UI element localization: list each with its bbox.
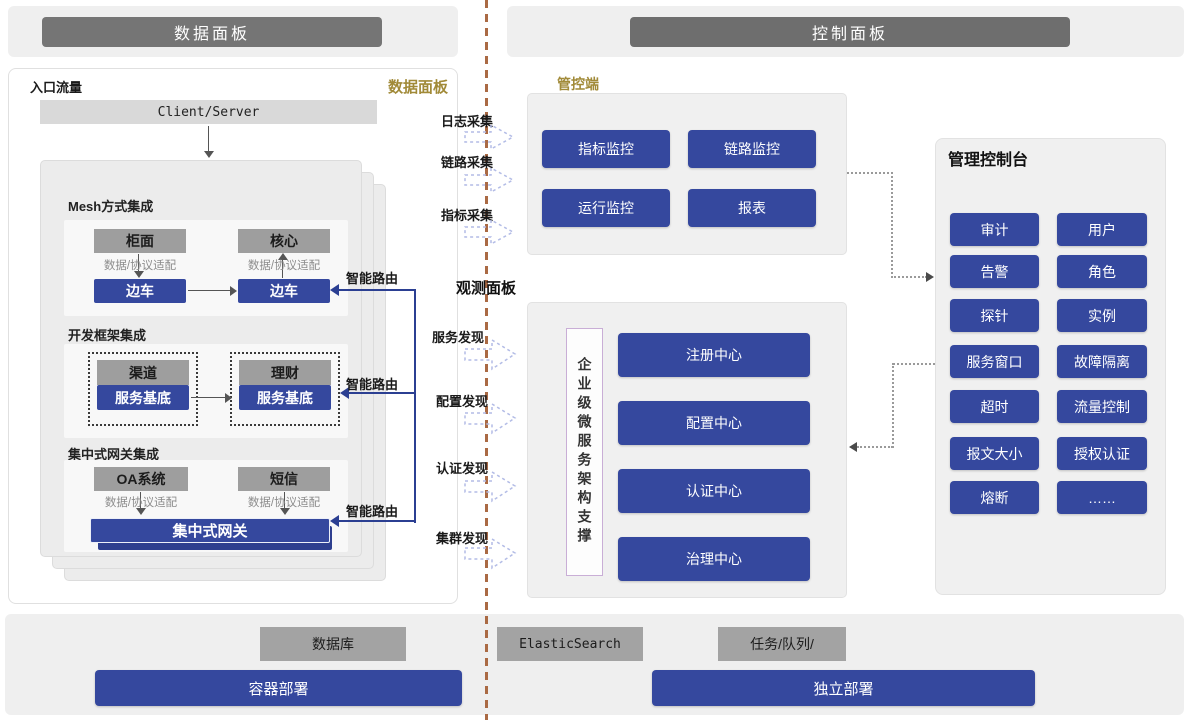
framework-base-right-label: 服务基底	[257, 388, 313, 408]
smart-route-label-2: 智能路由	[346, 374, 398, 393]
framework-base-left-label: 服务基底	[115, 388, 171, 408]
smart-route-label-3: 智能路由	[346, 501, 398, 520]
center-config-label: 配置中心	[686, 413, 742, 433]
control-panel-header-label: 控制面板	[812, 20, 888, 44]
mesh-adapter-left-label: 数据/协议适配	[94, 257, 186, 273]
sidecar-link-arrow-icon	[230, 286, 237, 296]
console-button-role: 角色	[1057, 255, 1147, 288]
database-node: 数据库	[260, 627, 406, 661]
smart-route-line-1	[338, 289, 416, 291]
connector-monitor-to-console-h1	[847, 172, 893, 174]
sidecar-right-label: 边车	[270, 281, 298, 301]
framework-section-title: 开发框架集成	[68, 325, 146, 344]
console-button-audit-label: 审计	[981, 220, 1009, 240]
console-button-audit: 审计	[950, 213, 1039, 246]
console-button-authz-label: 授权认证	[1074, 444, 1130, 464]
gateway-adapter-left-label: 数据/协议适配	[94, 494, 188, 510]
monitor-button-report-label: 报表	[738, 198, 766, 218]
connector-monitor-to-console-v	[891, 172, 893, 278]
monitor-button-runtime-label: 运行监控	[578, 198, 634, 218]
smart-route-vertical-line	[414, 290, 416, 523]
elasticsearch-label: ElasticSearch	[519, 637, 621, 652]
console-button-service-window-label: 服务窗口	[967, 352, 1023, 372]
mesh-app-right-label: 核心	[270, 231, 298, 251]
monitor-button-report: 报表	[688, 189, 816, 227]
control-panel-header: 控制面板	[630, 17, 1070, 47]
console-button-fault-isolation-label: 故障隔离	[1074, 352, 1130, 372]
entry-traffic-label: 入口流量	[30, 77, 82, 96]
console-button-timeout-label: 超时	[981, 397, 1009, 417]
connector-console-to-center-h2	[857, 446, 893, 448]
connector-arrow-right-icon	[926, 272, 934, 282]
flow-arrow-icon	[463, 218, 515, 246]
smart-route-arrow-3-icon	[330, 515, 339, 527]
support-vertical-box: 企业级微服务架构支撑	[566, 328, 603, 576]
monitor-button-runtime: 运行监控	[542, 189, 670, 227]
center-auth-label: 认证中心	[686, 481, 742, 501]
mesh-app-right-node: 核心	[238, 229, 330, 253]
manage-side-label: 管控端	[557, 74, 599, 94]
framework-app-right-label: 理财	[271, 363, 299, 383]
observe-panel-label: 观测面板	[456, 277, 516, 298]
data-panel-header: 数据面板	[42, 17, 382, 47]
center-registry: 注册中心	[618, 333, 810, 377]
console-button-user-label: 用户	[1088, 220, 1116, 240]
smart-route-arrow-1-icon	[330, 284, 339, 296]
console-button-message-size: 报文大小	[950, 437, 1039, 470]
client-server-node: Client/Server	[40, 100, 377, 124]
console-button-flow-control: 流量控制	[1057, 390, 1147, 423]
monitor-button-trace-label: 链路监控	[724, 139, 780, 159]
gateway-adapter-right-label: 数据/协议适配	[238, 494, 330, 510]
connector-monitor-to-console-h2	[891, 276, 927, 278]
connector-console-to-center-h1	[893, 363, 935, 365]
gateway-app-left-node: OA系统	[94, 467, 188, 491]
console-button-flow-control-label: 流量控制	[1074, 397, 1130, 417]
sidecar-left-label: 边车	[126, 281, 154, 301]
container-deploy-label: 容器部署	[248, 678, 308, 699]
console-button-circuit-break: 熔断	[950, 481, 1039, 514]
console-button-alert-label: 告警	[981, 262, 1009, 282]
connector-arrow-left-icon	[849, 442, 857, 452]
support-vertical-label: 企业级微服务架构支撑	[575, 357, 595, 547]
console-button-timeout: 超时	[950, 390, 1039, 423]
flow-arrow-icon	[463, 537, 517, 570]
client-down-arrow-icon	[204, 151, 214, 158]
elasticsearch-node: ElasticSearch	[497, 627, 643, 661]
data-panel-corner-label: 数据面板	[350, 76, 448, 97]
task-queue-label: 任务/队列/	[750, 634, 814, 654]
console-button-instance: 实例	[1057, 299, 1147, 332]
console-button-probe-label: 探针	[981, 306, 1009, 326]
task-queue-node: 任务/队列/	[718, 627, 846, 661]
flow-arrow-icon	[463, 166, 515, 194]
database-label: 数据库	[312, 634, 354, 654]
mesh-app-left-label: 柜面	[126, 231, 154, 251]
monitor-button-trace: 链路监控	[688, 130, 816, 168]
standalone-deploy-label: 独立部署	[813, 678, 873, 699]
sidecar-right-node: 边车	[238, 279, 330, 303]
mesh-app-left-node: 柜面	[94, 229, 186, 253]
center-governance: 治理中心	[618, 537, 810, 581]
container-deploy-bar: 容器部署	[95, 670, 462, 706]
framework-link-arrow-icon	[225, 393, 232, 403]
console-button-alert: 告警	[950, 255, 1039, 288]
gateway-app-left-label: OA系统	[117, 469, 166, 489]
console-button-role-label: 角色	[1088, 262, 1116, 282]
data-panel-header-label: 数据面板	[174, 20, 250, 44]
console-button-service-window: 服务窗口	[950, 345, 1039, 378]
flow-arrow-icon	[463, 402, 517, 435]
gateway-app-right-label: 短信	[270, 469, 298, 489]
standalone-deploy-bar: 独立部署	[652, 670, 1035, 706]
client-down-line	[208, 126, 209, 152]
framework-app-left-label: 渠道	[129, 363, 157, 383]
monitor-button-metrics: 指标监控	[542, 130, 670, 168]
console-button-message-size-label: 报文大小	[967, 444, 1023, 464]
smart-route-label-1: 智能路由	[346, 268, 398, 287]
center-registry-label: 注册中心	[686, 345, 742, 365]
gateway-bar-node: 集中式网关	[90, 518, 330, 543]
connector-console-to-center-v	[892, 363, 894, 448]
architecture-diagram: 数据面板 控制面板 入口流量 数据面板 Client/Server Mesh方式…	[0, 0, 1189, 720]
flow-arrow-icon	[463, 123, 515, 151]
console-button-more: ……	[1057, 481, 1147, 514]
console-button-instance-label: 实例	[1088, 306, 1116, 326]
sidecar-left-node: 边车	[94, 279, 186, 303]
console-button-more-label: ……	[1088, 490, 1116, 506]
console-button-authz: 授权认证	[1057, 437, 1147, 470]
console-button-user: 用户	[1057, 213, 1147, 246]
mesh-section-title: Mesh方式集成	[68, 196, 153, 215]
monitor-button-metrics-label: 指标监控	[578, 139, 634, 159]
sidecar-link-line	[188, 290, 231, 291]
console-title: 管理控制台	[948, 146, 1028, 170]
framework-app-right-node: 理财	[239, 360, 331, 385]
client-server-label: Client/Server	[158, 105, 260, 120]
center-config: 配置中心	[618, 401, 810, 445]
gateway-app-right-node: 短信	[238, 467, 330, 491]
gateway-bar-label: 集中式网关	[172, 520, 247, 541]
flow-arrow-icon	[463, 470, 517, 503]
center-auth: 认证中心	[618, 469, 810, 513]
center-governance-label: 治理中心	[686, 549, 742, 569]
smart-route-line-3	[338, 520, 416, 522]
flow-arrow-icon	[463, 338, 517, 371]
mesh-adapter-right-label: 数据/协议适配	[238, 257, 330, 273]
console-button-fault-isolation: 故障隔离	[1057, 345, 1147, 378]
monitor-panel	[527, 93, 847, 255]
framework-app-left-node: 渠道	[97, 360, 189, 385]
console-button-probe: 探针	[950, 299, 1039, 332]
framework-link-line	[191, 397, 226, 398]
console-button-circuit-break-label: 熔断	[981, 488, 1009, 508]
framework-base-right-node: 服务基底	[239, 385, 331, 410]
framework-base-left-node: 服务基底	[97, 385, 189, 410]
